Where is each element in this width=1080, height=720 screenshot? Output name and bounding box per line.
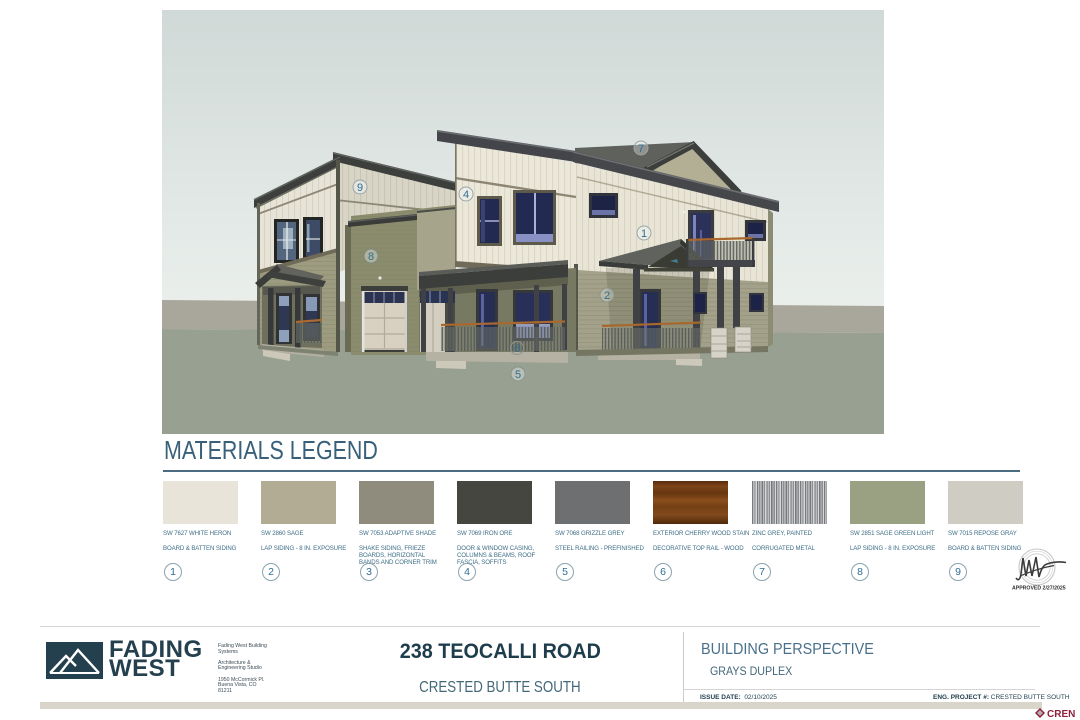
svg-text:8: 8 <box>368 251 374 263</box>
svg-text:5: 5 <box>515 369 521 381</box>
svg-text:APPROVED 2/27/2025: APPROVED 2/27/2025 <box>1012 586 1066 592</box>
svg-text:4: 4 <box>463 189 469 201</box>
svg-text:6: 6 <box>514 343 520 355</box>
svg-text:2: 2 <box>604 290 610 302</box>
svg-text:CREN: CREN <box>1047 709 1075 719</box>
svg-text:7: 7 <box>638 143 644 155</box>
svg-text:9: 9 <box>357 182 363 194</box>
svg-text:1: 1 <box>641 228 647 240</box>
